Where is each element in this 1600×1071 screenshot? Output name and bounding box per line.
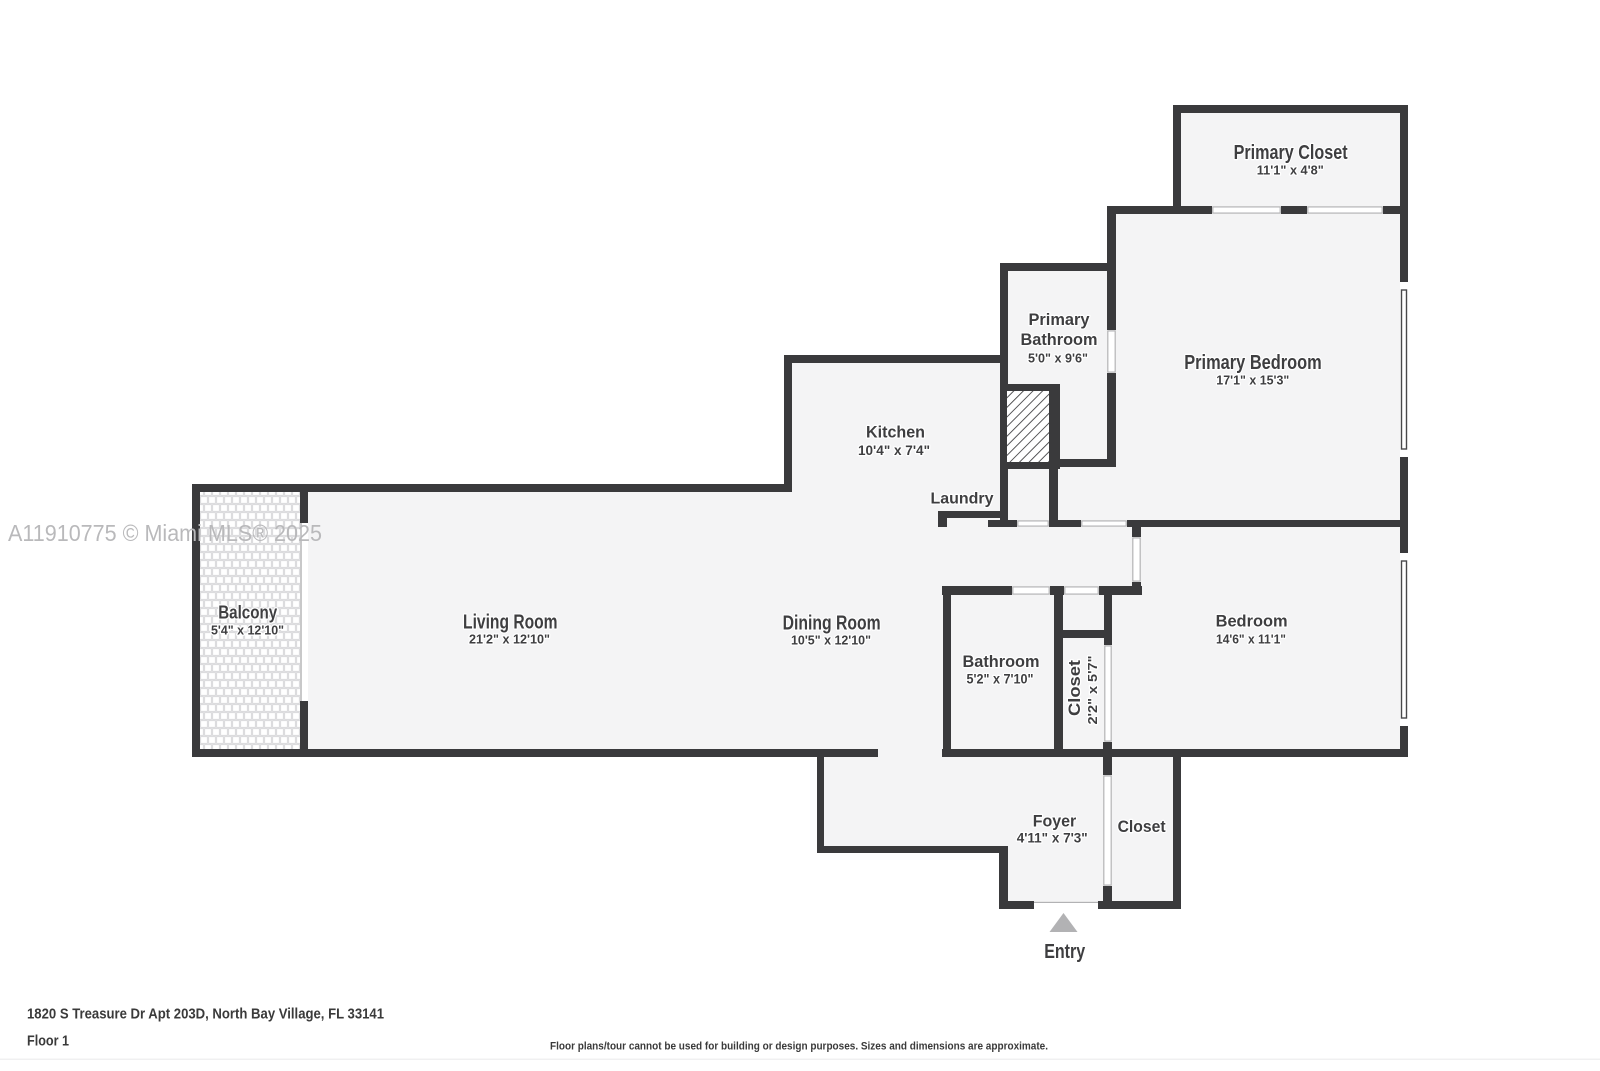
svg-text:Floor 1: Floor 1 (27, 1033, 69, 1050)
svg-text:Laundry: Laundry (931, 490, 994, 507)
svg-text:Floor plans/tour cannot be use: Floor plans/tour cannot be used for buil… (550, 1041, 1048, 1053)
svg-text:Primary Bedroom: Primary Bedroom (1184, 352, 1322, 374)
svg-text:17'1" x 15'3": 17'1" x 15'3" (1216, 372, 1289, 387)
svg-text:5'0" x 9'6": 5'0" x 9'6" (1028, 350, 1088, 365)
svg-text:Balcony: Balcony (218, 603, 277, 623)
svg-text:Living Room: Living Room (463, 612, 558, 634)
svg-text:10'5" x 12'10": 10'5" x 12'10" (791, 633, 871, 648)
svg-text:Primary: Primary (1029, 310, 1091, 329)
svg-text:Dining Room: Dining Room (783, 613, 881, 635)
svg-text:1820 S Treasure Dr Apt 203D, N: 1820 S Treasure Dr Apt 203D, North Bay V… (27, 1006, 384, 1023)
svg-text:2'2" x 5'7": 2'2" x 5'7" (1085, 656, 1100, 725)
svg-text:5'2" x 7'10": 5'2" x 7'10" (967, 672, 1034, 687)
svg-text:Entry: Entry (1044, 941, 1086, 963)
svg-text:Bedroom: Bedroom (1216, 612, 1288, 631)
svg-text:10'4" x 7'4": 10'4" x 7'4" (858, 443, 930, 458)
svg-text:Foyer: Foyer (1033, 812, 1077, 831)
svg-text:Primary Closet: Primary Closet (1234, 142, 1348, 164)
svg-text:14'6" x 11'1": 14'6" x 11'1" (1216, 632, 1286, 647)
svg-text:Closet: Closet (1065, 660, 1084, 716)
svg-text:Kitchen: Kitchen (866, 423, 925, 442)
svg-text:11'1" x 4'8": 11'1" x 4'8" (1257, 162, 1324, 177)
svg-text:5'4" x 12'10": 5'4" x 12'10" (211, 622, 284, 637)
svg-text:Bathroom: Bathroom (963, 652, 1040, 671)
svg-text:4'11" x 7'3": 4'11" x 7'3" (1017, 831, 1088, 846)
svg-text:Closet: Closet (1118, 817, 1166, 836)
svg-text:21'2" x 12'10": 21'2" x 12'10" (469, 632, 550, 647)
svg-text:Bathroom: Bathroom (1021, 330, 1098, 349)
svg-text:A11910775 © Miami MLS® 2025: A11910775 © Miami MLS® 2025 (8, 520, 322, 546)
